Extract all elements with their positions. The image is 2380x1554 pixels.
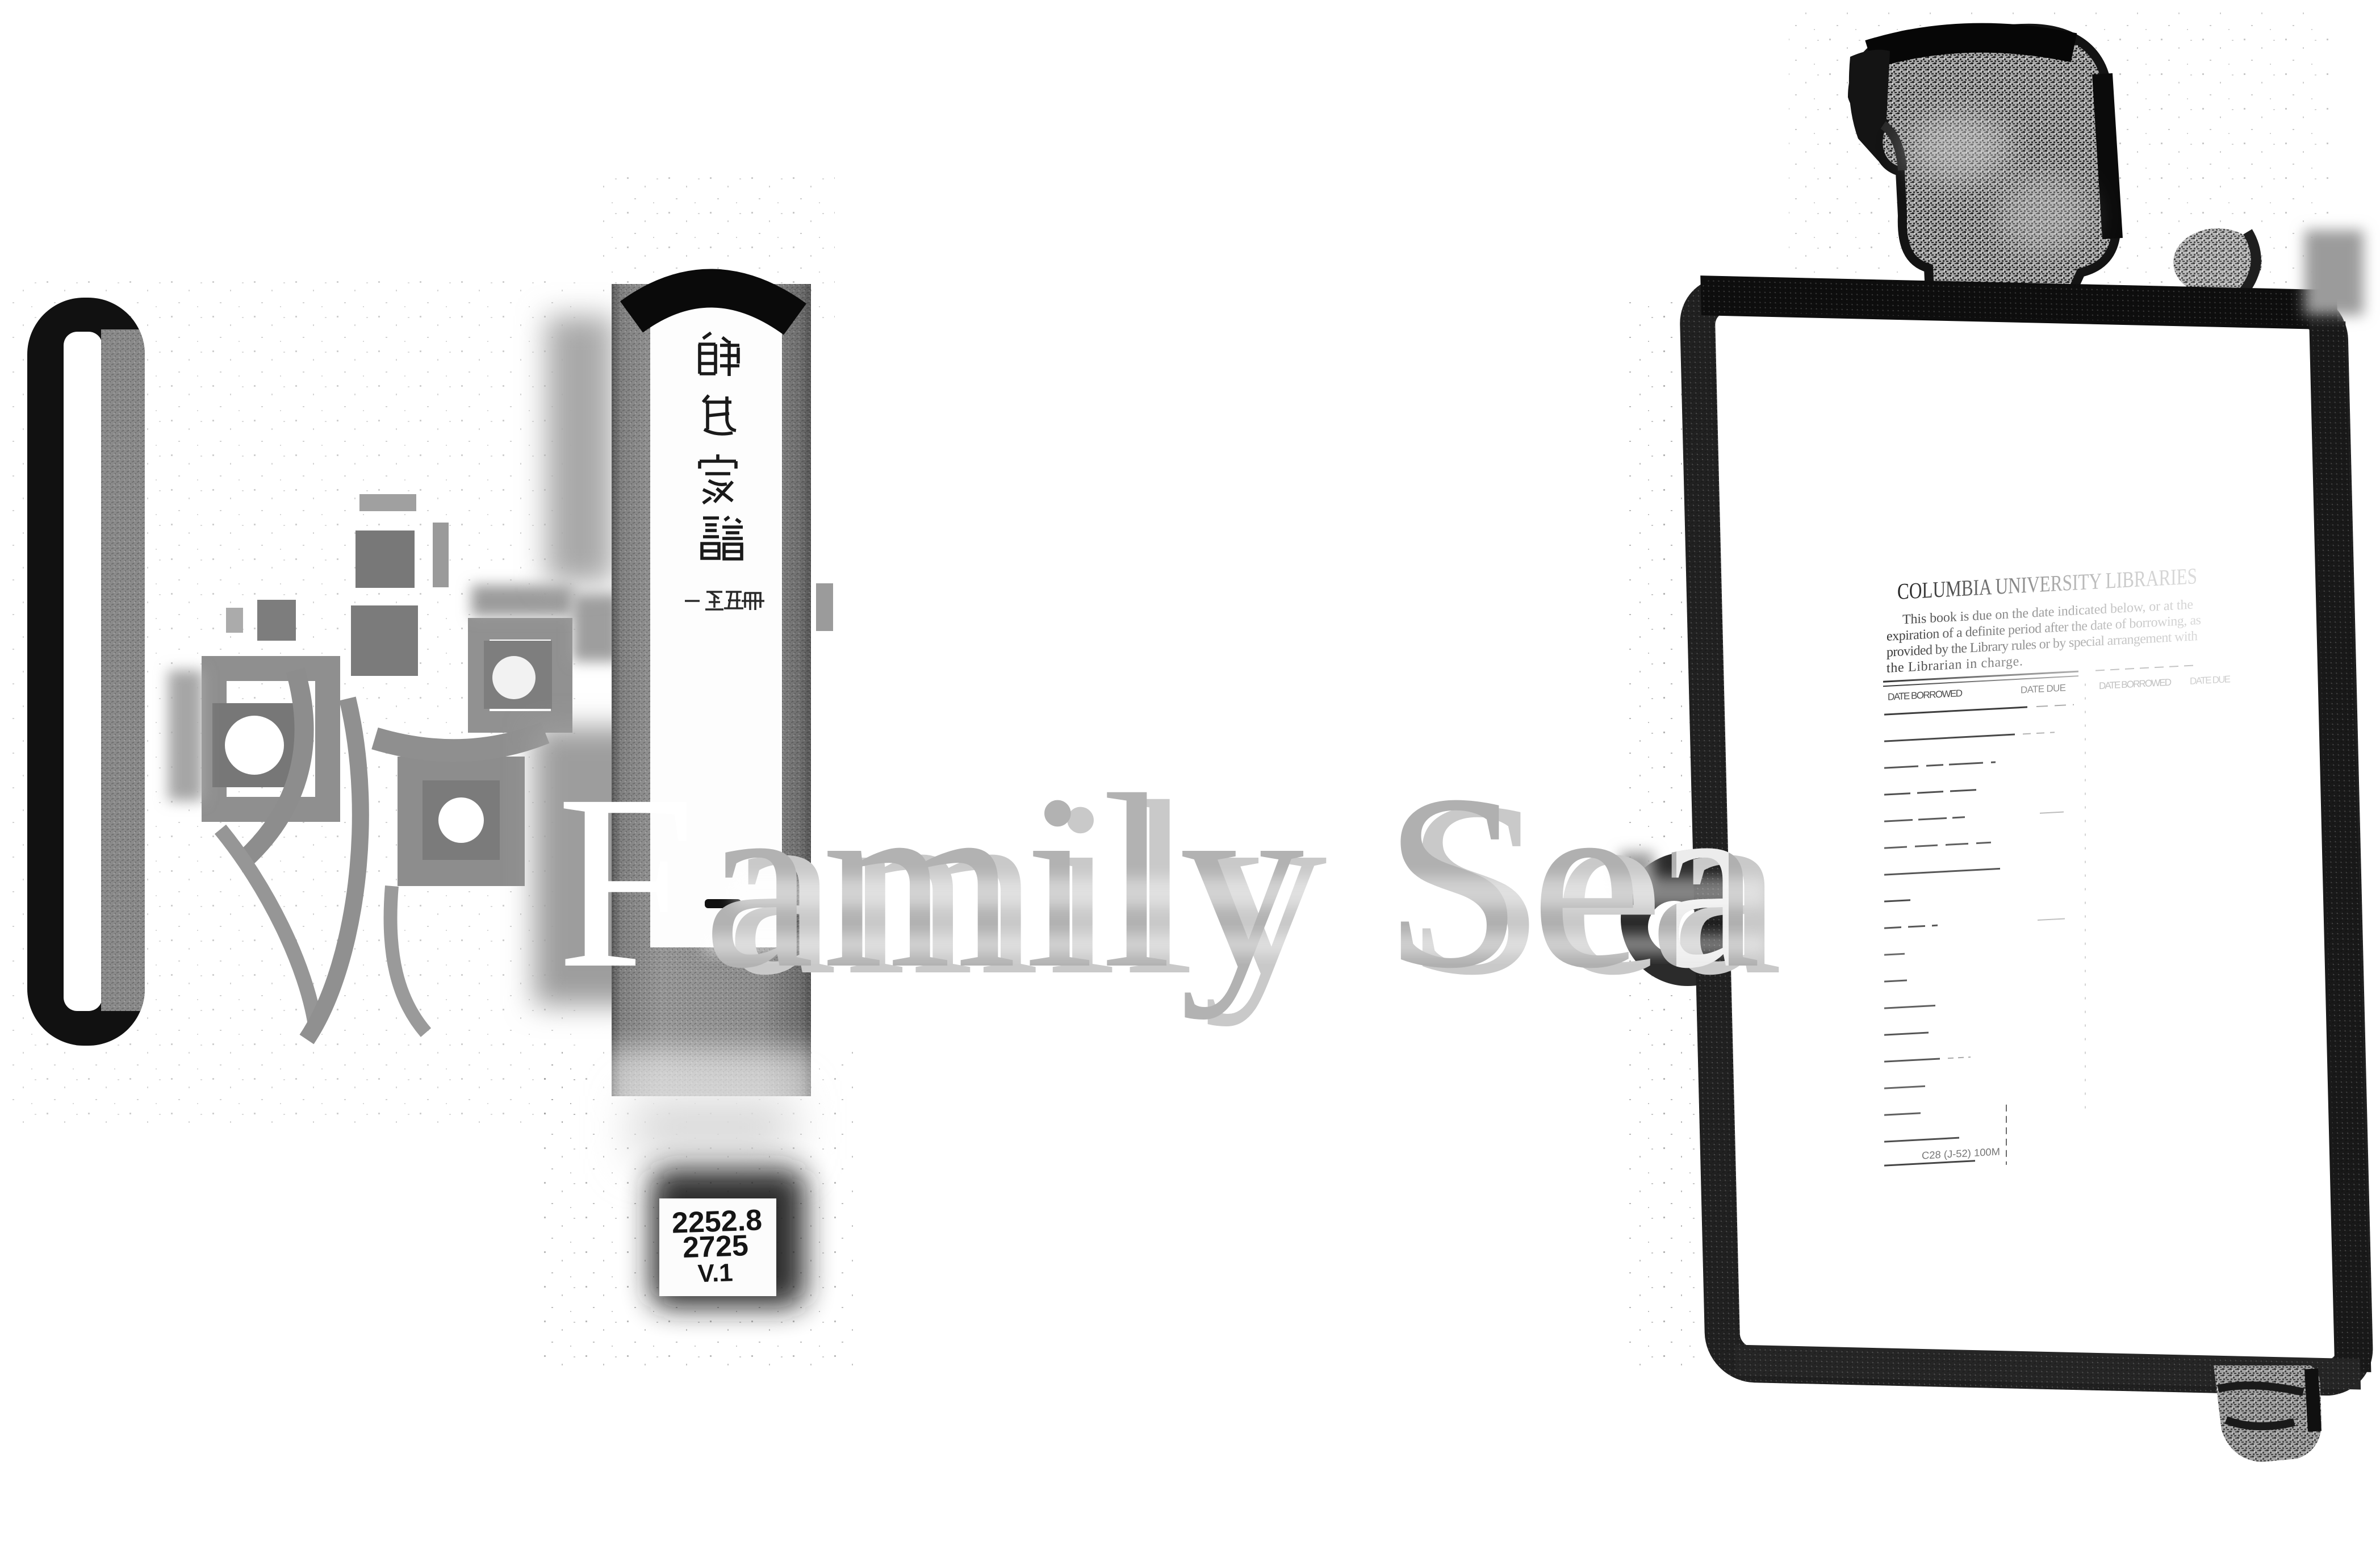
svg-text:DATE DUE: DATE DUE: [2190, 674, 2231, 687]
svg-text:V.1: V.1: [697, 1259, 734, 1288]
